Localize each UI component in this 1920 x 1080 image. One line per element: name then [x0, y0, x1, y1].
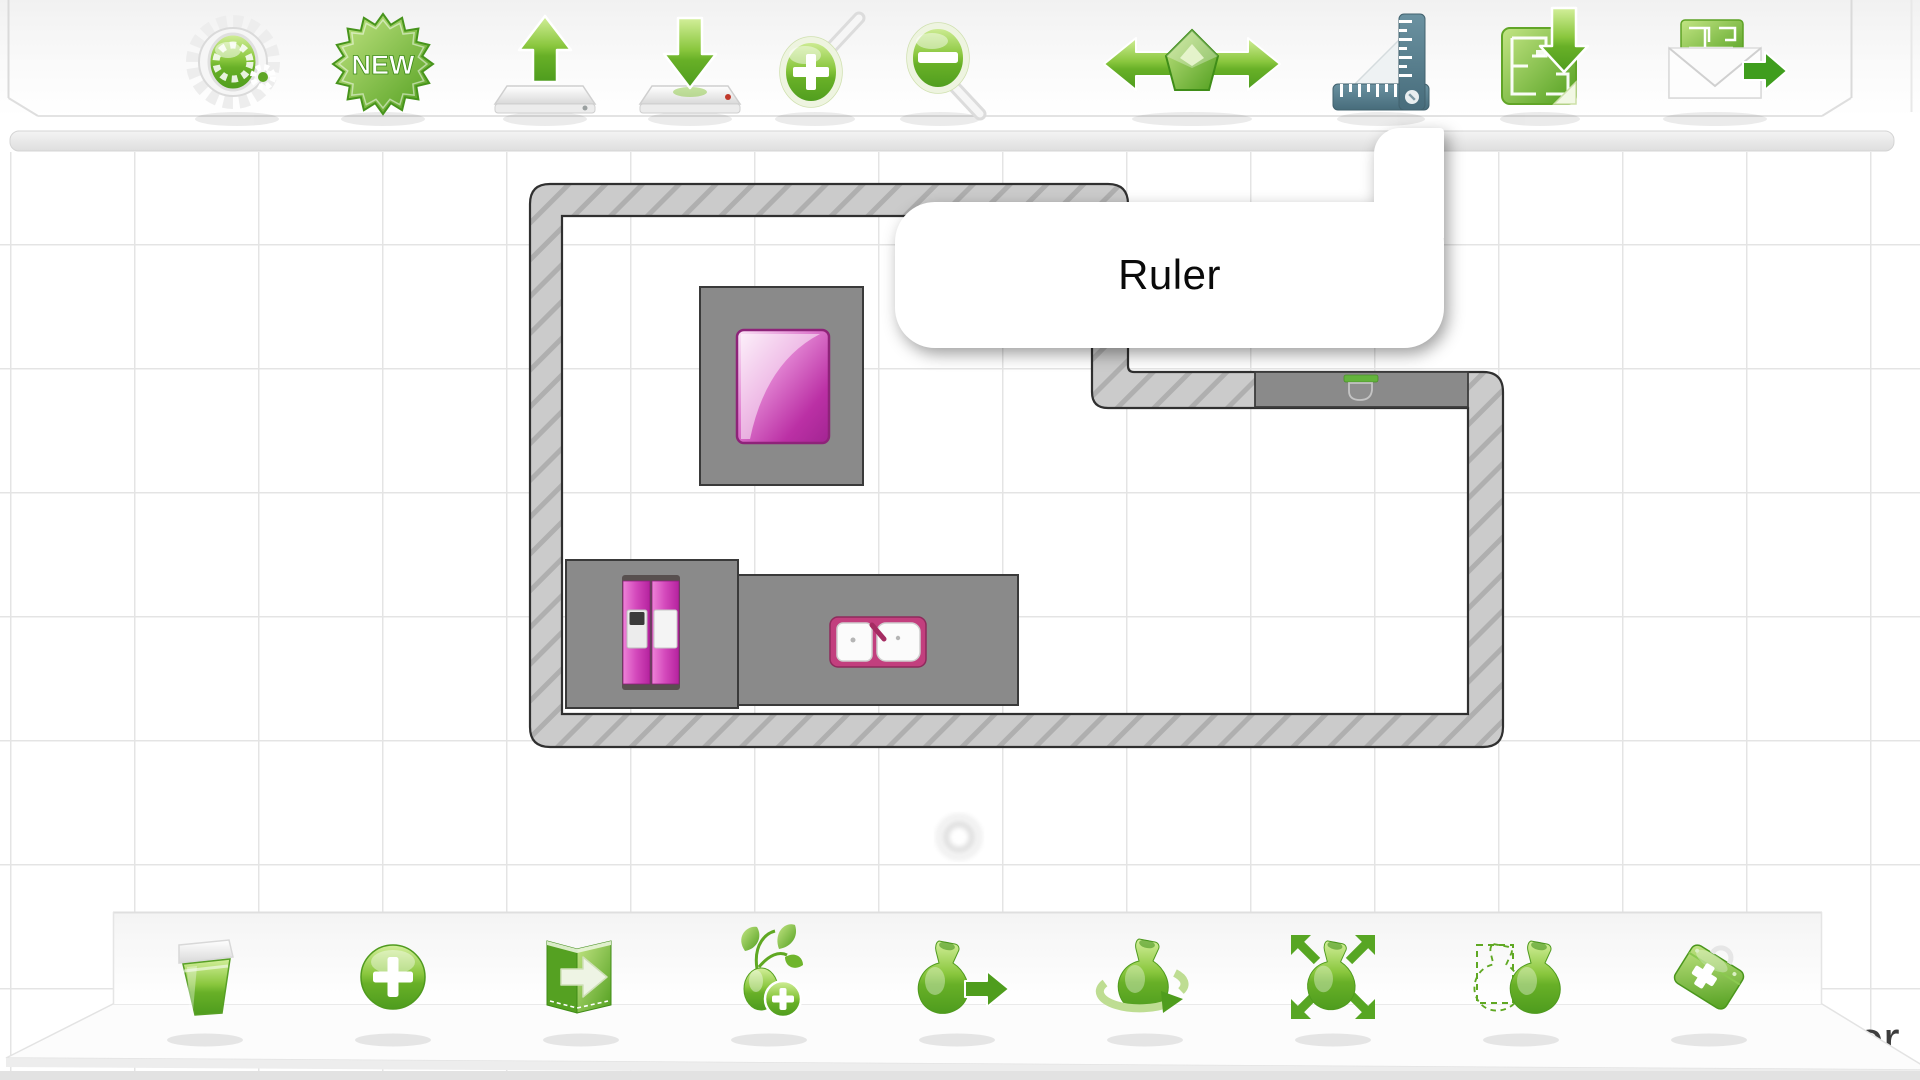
sink[interactable]: [830, 617, 926, 667]
load-plan-button[interactable]: [628, 2, 752, 126]
new-badge-icon: NEW: [321, 2, 445, 126]
toolbox-button[interactable]: [1644, 912, 1774, 1042]
send-plan-button[interactable]: [1640, 2, 1790, 126]
new-badge-label: NEW: [352, 50, 416, 80]
magnifier-plus-icon: [753, 2, 877, 126]
vase-arrow-icon: [892, 912, 1022, 1042]
import-plan-image-button[interactable]: [1478, 2, 1602, 126]
envelope-arrow-icon: [1640, 2, 1790, 126]
gears-icon: [175, 2, 299, 126]
left-right-arrows-gem-icon: [1097, 2, 1287, 126]
book-arrow-icon: [516, 912, 646, 1042]
zoom-out-button[interactable]: [878, 2, 1002, 126]
move-object-button[interactable]: [892, 912, 1022, 1042]
tooltip-body: Ruler: [895, 202, 1444, 348]
ruler-button[interactable]: [1319, 2, 1443, 126]
new-plan-button[interactable]: NEW: [321, 2, 445, 126]
flip-horizontal-button[interactable]: [1097, 2, 1287, 126]
save-plan-button[interactable]: [483, 2, 607, 126]
plant-plus-icon: [704, 912, 834, 1042]
scale-object-button[interactable]: [1268, 912, 1398, 1042]
first-aid-kit-icon: [1644, 912, 1774, 1042]
rotate-object-button[interactable]: [1080, 912, 1210, 1042]
plus-circle-icon: [328, 912, 458, 1042]
top-toolbar: NEW: [0, 0, 1920, 152]
export-book-button[interactable]: [516, 912, 646, 1042]
add-furniture-button[interactable]: [704, 912, 834, 1042]
settings-button[interactable]: [175, 2, 299, 126]
bottom-toolbar: [0, 900, 1920, 1080]
add-object-button[interactable]: [328, 912, 458, 1042]
delete-object-button[interactable]: [140, 912, 270, 1042]
vase-rotate-icon: [1080, 912, 1210, 1042]
furniture-table[interactable]: [700, 287, 863, 485]
trash-icon: [140, 912, 270, 1042]
furniture-sink-counter[interactable]: [738, 575, 1018, 705]
zoom-in-button[interactable]: [753, 2, 877, 126]
vase-expand-arrows-icon: [1268, 912, 1398, 1042]
magnifier-minus-icon: [878, 2, 1002, 126]
vase-duplicate-icon: [1456, 912, 1586, 1042]
furniture-fridge[interactable]: [566, 560, 738, 708]
floor-plan-download-icon: [1478, 2, 1602, 126]
duplicate-object-button[interactable]: [1456, 912, 1586, 1042]
arrow-up-tray-icon: [483, 2, 607, 126]
tooltip-text: Ruler: [1118, 251, 1221, 299]
arrow-down-tray-icon: [628, 2, 752, 126]
floor-plan-app: or: [0, 0, 1920, 1080]
wall-counter[interactable]: [1255, 372, 1468, 407]
ruler-icon: [1319, 2, 1443, 126]
origin-marker[interactable]: [938, 816, 980, 858]
